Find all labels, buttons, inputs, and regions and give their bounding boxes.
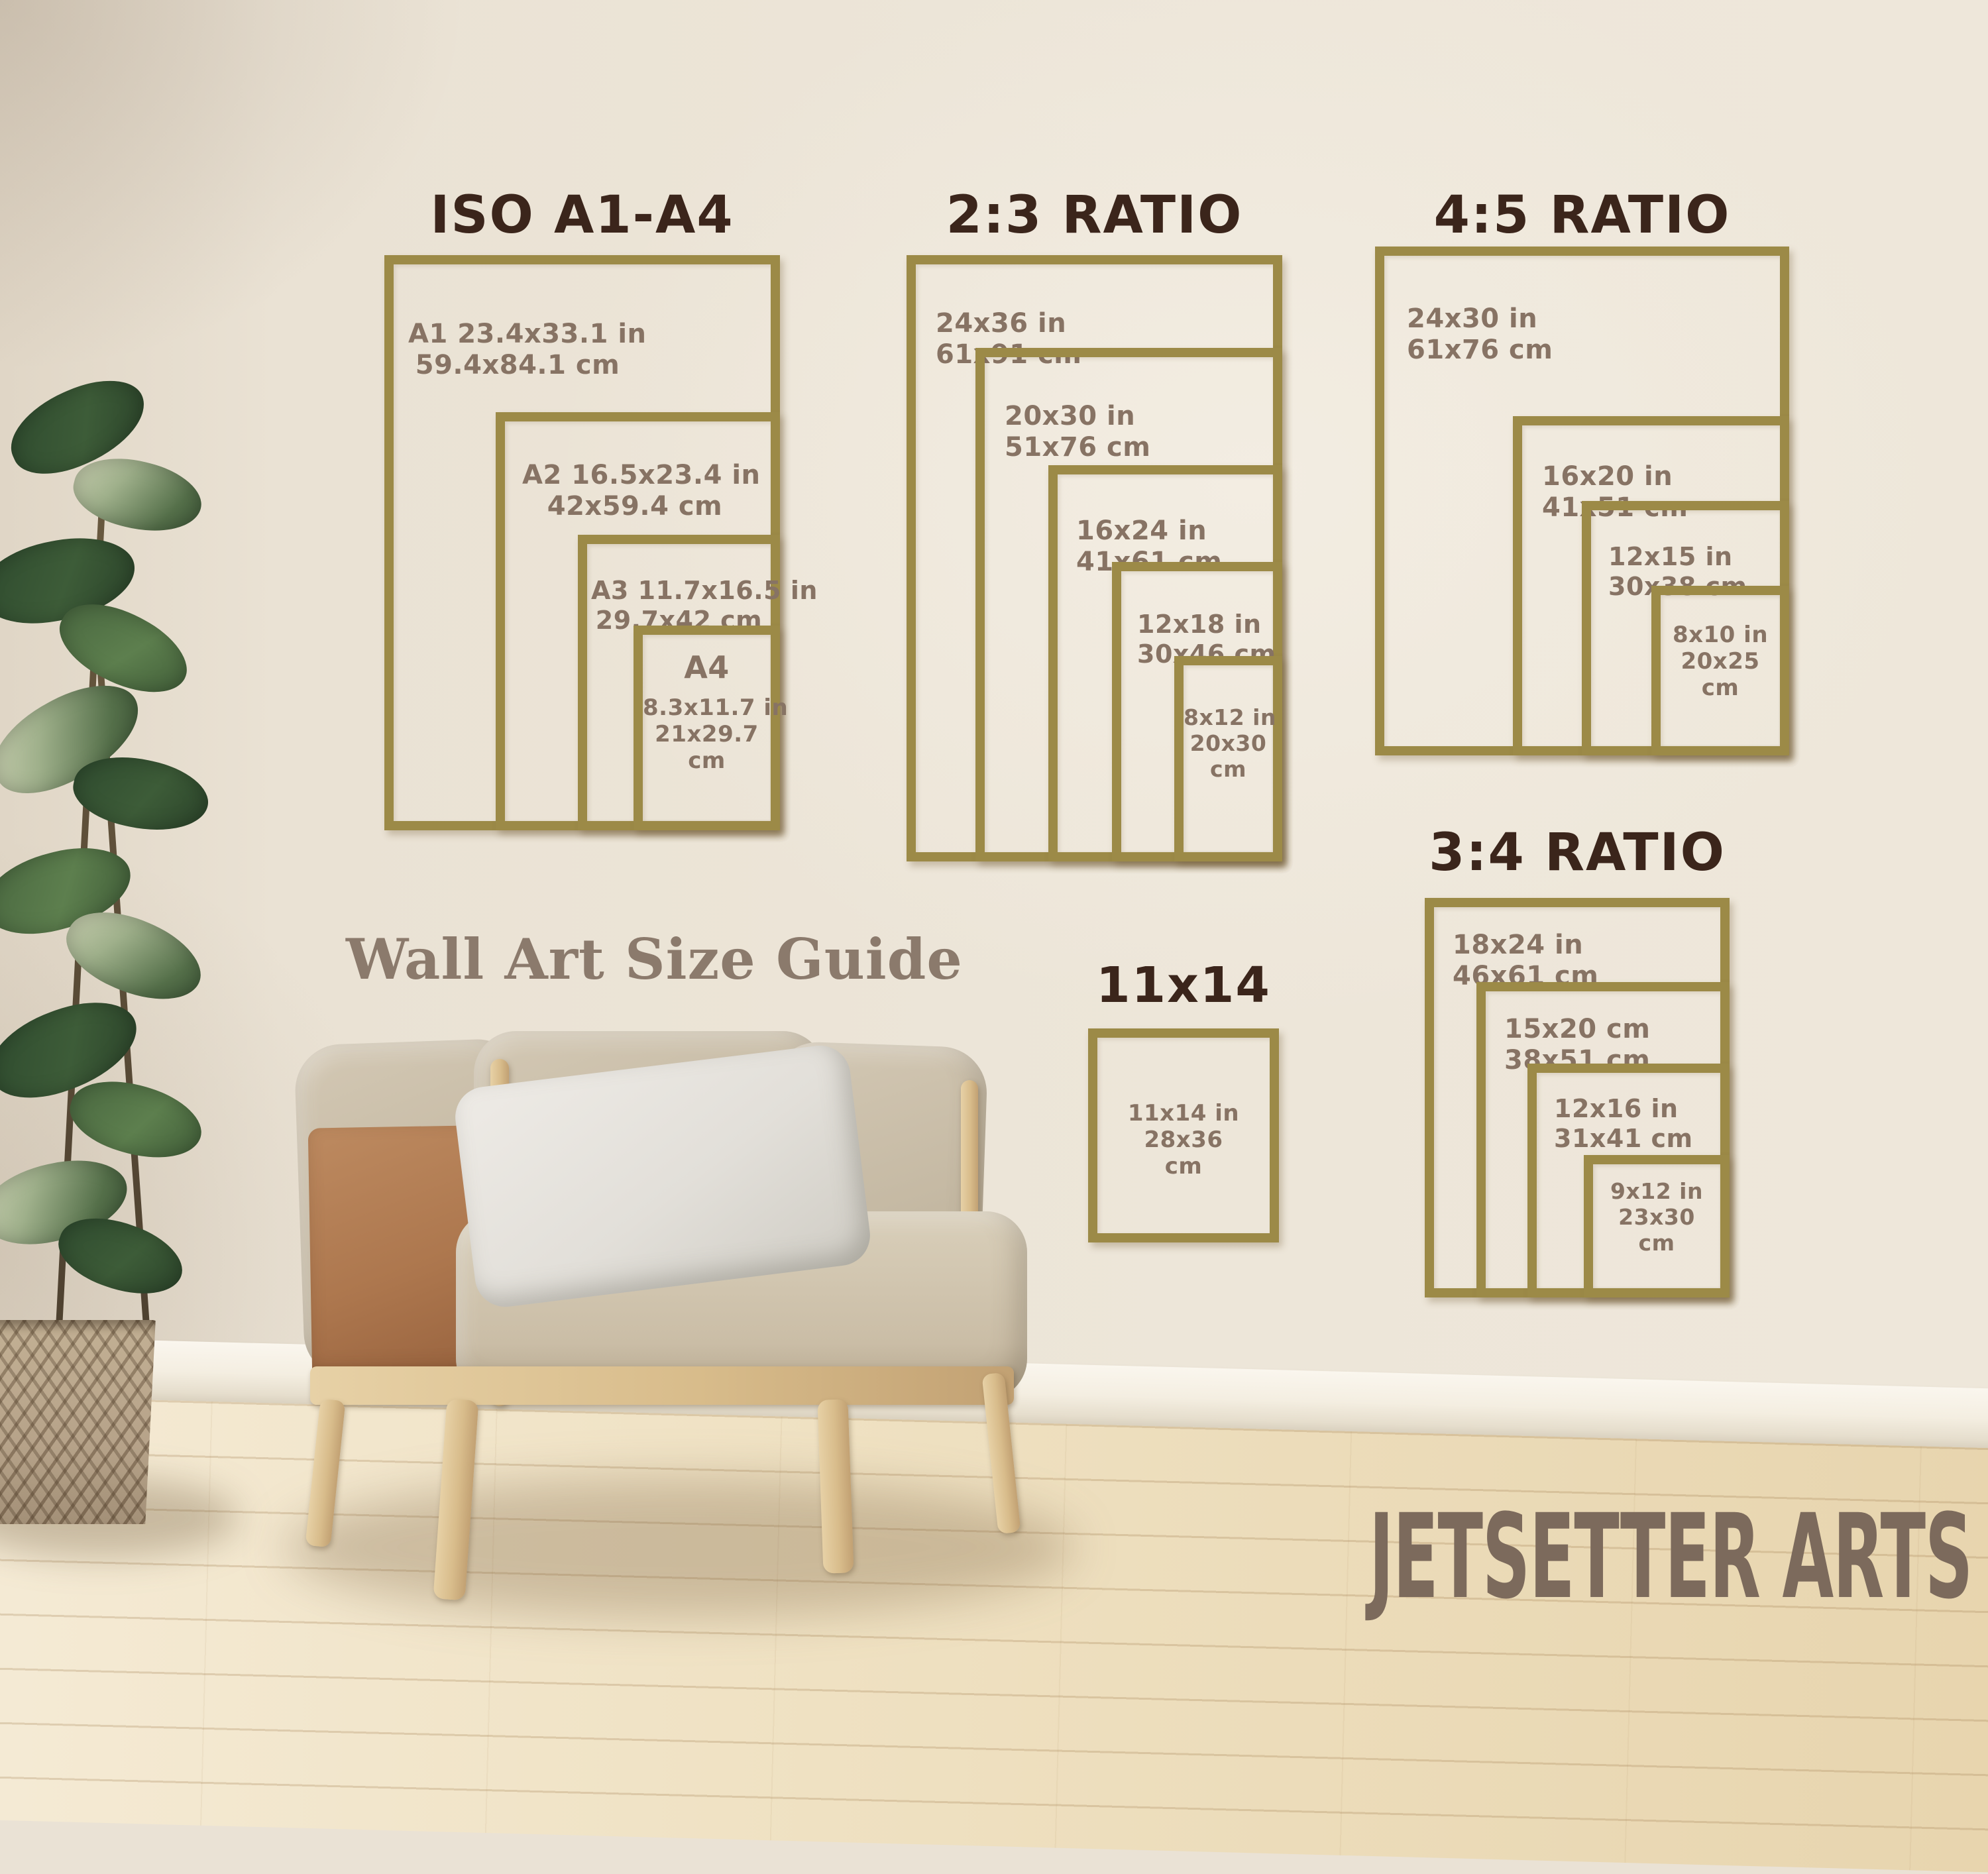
size-line: A1 23.4x33.1 in <box>408 319 627 350</box>
ratio45-frame-24x30-label: 24x30 in 61x76 cm <box>1407 303 1553 366</box>
size-line: 61x76 cm <box>1407 335 1553 366</box>
size-line: 16x24 in <box>1076 516 1222 547</box>
size-line: cm <box>1184 757 1273 783</box>
page-title: Wall Art Size Guide <box>346 926 963 992</box>
plant-basket <box>0 1320 159 1524</box>
group-title-2-3: 2:3 RATIO <box>907 190 1282 241</box>
size-line: 51x76 cm <box>1005 432 1150 463</box>
size-line: cm <box>1661 675 1780 701</box>
size-line: 15x20 cm <box>1504 1014 1650 1045</box>
size-line: 23x30 <box>1593 1205 1720 1231</box>
size-line: 12x16 in <box>1554 1094 1693 1124</box>
size-line: 42x59.4 cm <box>522 491 747 522</box>
size-line: 11x14 in <box>1097 1100 1270 1127</box>
iso-frame-a4: A4 8.3x11.7 in 21x29.7 cm <box>634 626 780 830</box>
group-title-11x14: 11x14 <box>1088 961 1279 1010</box>
size-line: 31x41 cm <box>1554 1124 1693 1154</box>
size-line: 24x30 in <box>1407 303 1553 335</box>
group-title-4-5: 4:5 RATIO <box>1375 190 1789 241</box>
size-line: 8x12 in <box>1184 705 1273 731</box>
iso-frame-a2-label: A2 16.5x23.4 in 42x59.4 cm <box>522 460 747 522</box>
ratio45-frame-8x10: 8x10 in 20x25 cm <box>1651 586 1789 755</box>
ratio23-frame-20x30-label: 20x30 in 51x76 cm <box>1005 401 1150 463</box>
chair-rail <box>310 1366 1014 1405</box>
size-line: 12x15 in <box>1608 542 1747 572</box>
ratio45-frame-8x10-label: 8x10 in 20x25 cm <box>1661 622 1780 701</box>
size-line: A2 16.5x23.4 in <box>522 460 747 491</box>
size-line: 21x29.7 <box>643 721 771 747</box>
ratio34-frame-9x12: 9x12 in 23x30 cm <box>1584 1155 1730 1297</box>
size-line: 18x24 in <box>1453 930 1598 961</box>
iso-frame-a1-label: A1 23.4x33.1 in 59.4x84.1 cm <box>408 319 627 381</box>
size-line: 20x30 <box>1184 731 1273 757</box>
size-line: 12x18 in <box>1137 610 1276 639</box>
frame-11x14-label: 11x14 in 28x36 cm <box>1097 1100 1270 1180</box>
ratio34-frame-9x12-label: 9x12 in 23x30 cm <box>1593 1179 1720 1256</box>
size-line: 9x12 in <box>1593 1179 1720 1205</box>
size-line: 24x36 in <box>936 308 1081 339</box>
chair-leg <box>817 1399 854 1573</box>
size-line: cm <box>1097 1153 1270 1180</box>
group-title-3-4: 3:4 RATIO <box>1425 827 1730 879</box>
size-line: 16x20 in <box>1542 461 1688 492</box>
ratio23-frame-8x12-label: 8x12 in 20x30 cm <box>1184 705 1273 783</box>
size-line: 8x10 in <box>1661 622 1780 648</box>
size-line: 59.4x84.1 cm <box>408 350 627 381</box>
iso-frame-a4-label: A4 8.3x11.7 in 21x29.7 cm <box>643 649 771 775</box>
chair-shadow <box>285 1478 1074 1617</box>
size-line: A3 11.7x16.5 in <box>591 576 767 606</box>
size-line: cm <box>643 747 771 774</box>
ratio23-frame-8x12: 8x12 in 20x30 cm <box>1174 656 1282 861</box>
size-line: 28x36 <box>1097 1127 1270 1153</box>
size-line: 8.3x11.7 in <box>643 694 771 721</box>
size-line: cm <box>1593 1231 1720 1256</box>
size-line: A4 <box>643 649 771 685</box>
size-line: 20x25 <box>1661 648 1780 675</box>
ratio34-frame-12x16-label: 12x16 in 31x41 cm <box>1554 1094 1693 1154</box>
brand-watermark: JETSETTER ARTS <box>1369 1499 1972 1616</box>
group-title-iso: ISO A1-A4 <box>384 190 780 241</box>
size-line: 20x30 in <box>1005 401 1150 432</box>
frame-11x14: 11x14 in 28x36 cm <box>1088 1028 1279 1242</box>
